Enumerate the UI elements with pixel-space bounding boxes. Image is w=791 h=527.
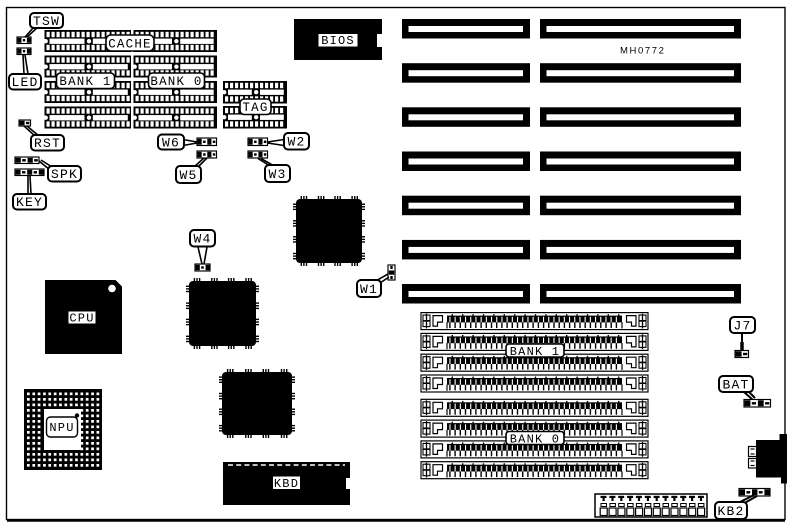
svg-text:CPU: CPU (69, 312, 94, 326)
svg-text:BAT: BAT (722, 377, 749, 392)
svg-text:BANK 0: BANK 0 (510, 432, 560, 446)
svg-text:TAG: TAG (242, 101, 268, 115)
svg-text:W4: W4 (193, 232, 211, 247)
svg-text:NPU: NPU (49, 421, 74, 435)
svg-text:KBD: KBD (274, 477, 299, 491)
svg-text:BANK 1: BANK 1 (59, 75, 111, 89)
svg-text:W2: W2 (287, 135, 305, 150)
svg-text:LED: LED (11, 75, 38, 90)
svg-text:J7: J7 (733, 318, 751, 333)
svg-text:BIOS: BIOS (321, 34, 355, 48)
svg-text:W6: W6 (162, 135, 180, 150)
svg-text:BANK 0: BANK 0 (150, 75, 202, 89)
svg-text:BANK 1: BANK 1 (510, 345, 560, 359)
svg-text:KEY: KEY (16, 195, 43, 210)
svg-text:W3: W3 (268, 167, 286, 182)
svg-text:MH0772: MH0772 (620, 46, 666, 57)
svg-text:W5: W5 (179, 168, 197, 183)
svg-text:TSW: TSW (33, 14, 60, 29)
svg-text:CACHE: CACHE (108, 37, 152, 51)
svg-text:RST: RST (34, 136, 61, 151)
svg-text:W1: W1 (360, 282, 378, 297)
svg-text:SPK: SPK (51, 167, 78, 182)
svg-text:KB2: KB2 (717, 504, 744, 519)
